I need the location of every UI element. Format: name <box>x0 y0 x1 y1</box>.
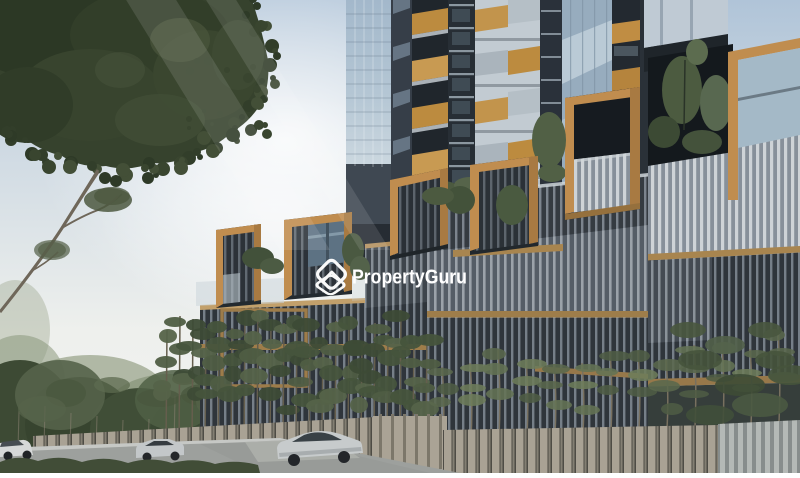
svg-text:PropertyGuru: PropertyGuru <box>352 266 467 289</box>
